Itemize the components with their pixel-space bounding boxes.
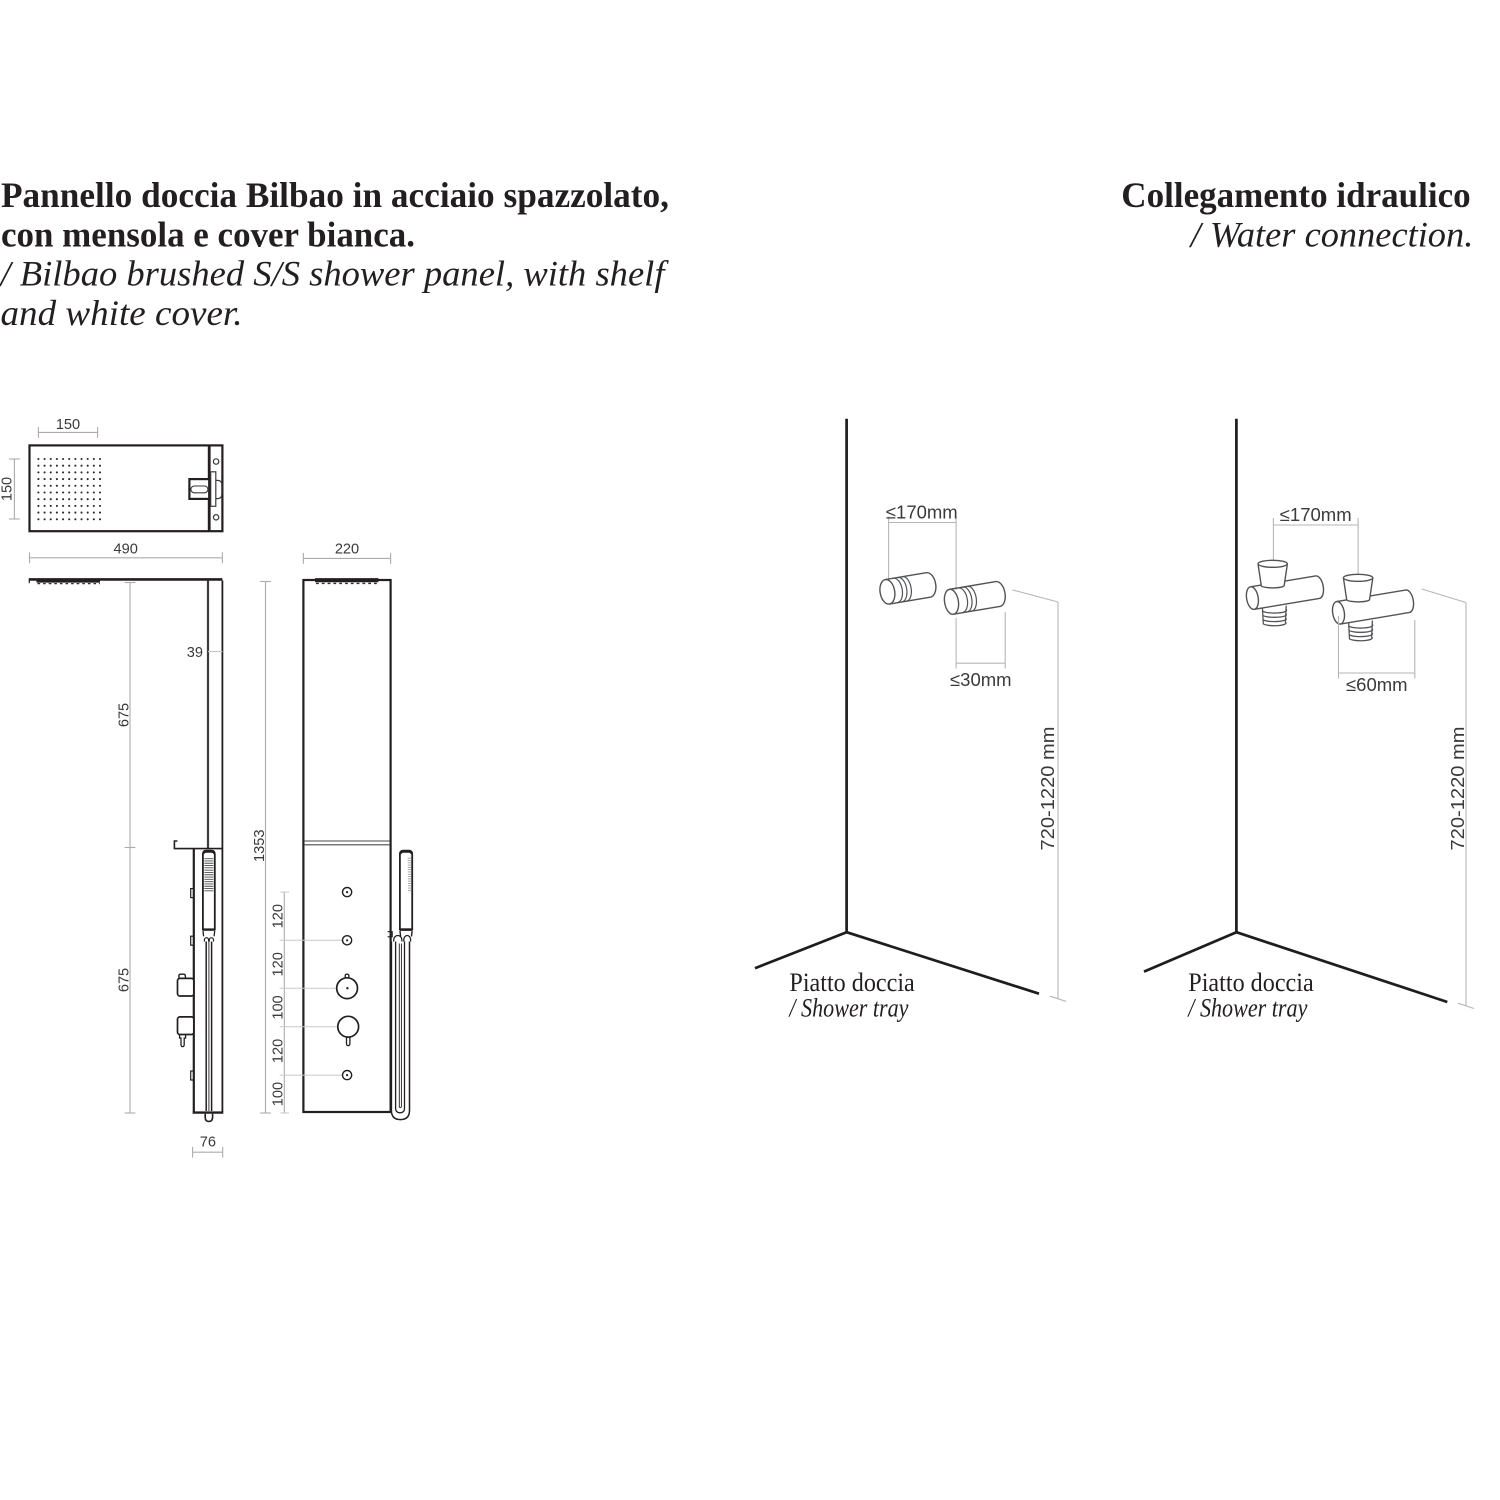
svg-text:Collegamento idraulico: Collegamento idraulico: [1121, 175, 1470, 215]
svg-text:1353: 1353: [252, 830, 268, 862]
svg-text:100: 100: [271, 995, 287, 1019]
svg-text:Pannello doccia Bilbao in acci: Pannello doccia Bilbao in acciaio spazzo…: [1, 175, 669, 215]
svg-text:220: 220: [335, 541, 359, 557]
svg-text:/ Shower tray: / Shower tray: [788, 993, 909, 1023]
svg-text:675: 675: [116, 968, 132, 992]
svg-text:120: 120: [271, 904, 287, 928]
svg-text:/ Water connection.: / Water connection.: [1189, 214, 1474, 254]
svg-text:con mensola e cover bianca.: con mensola e cover bianca.: [1, 214, 415, 254]
svg-text:150: 150: [0, 477, 15, 501]
svg-text:/ Bilbao brushed S/S shower pa: / Bilbao brushed S/S shower panel, with …: [0, 254, 669, 294]
svg-text:675: 675: [116, 703, 132, 727]
svg-text:150: 150: [56, 417, 80, 433]
svg-text:120: 120: [271, 952, 287, 976]
svg-text:76: 76: [200, 1135, 216, 1151]
svg-text:720-1220 mm: 720-1220 mm: [1037, 727, 1058, 851]
svg-text:490: 490: [114, 541, 138, 557]
svg-text:and white cover.: and white cover.: [1, 293, 243, 333]
svg-text:≤170mm: ≤170mm: [1280, 504, 1352, 525]
svg-text:≤30mm: ≤30mm: [950, 669, 1012, 690]
svg-text:≤60mm: ≤60mm: [1346, 674, 1408, 695]
svg-text:720-1220 mm: 720-1220 mm: [1447, 727, 1468, 851]
svg-text:39: 39: [187, 645, 203, 661]
svg-text:120: 120: [271, 1039, 287, 1063]
svg-text:100: 100: [271, 1082, 287, 1106]
svg-text:/ Shower tray: / Shower tray: [1187, 993, 1308, 1023]
svg-text:≤170mm: ≤170mm: [886, 502, 958, 523]
